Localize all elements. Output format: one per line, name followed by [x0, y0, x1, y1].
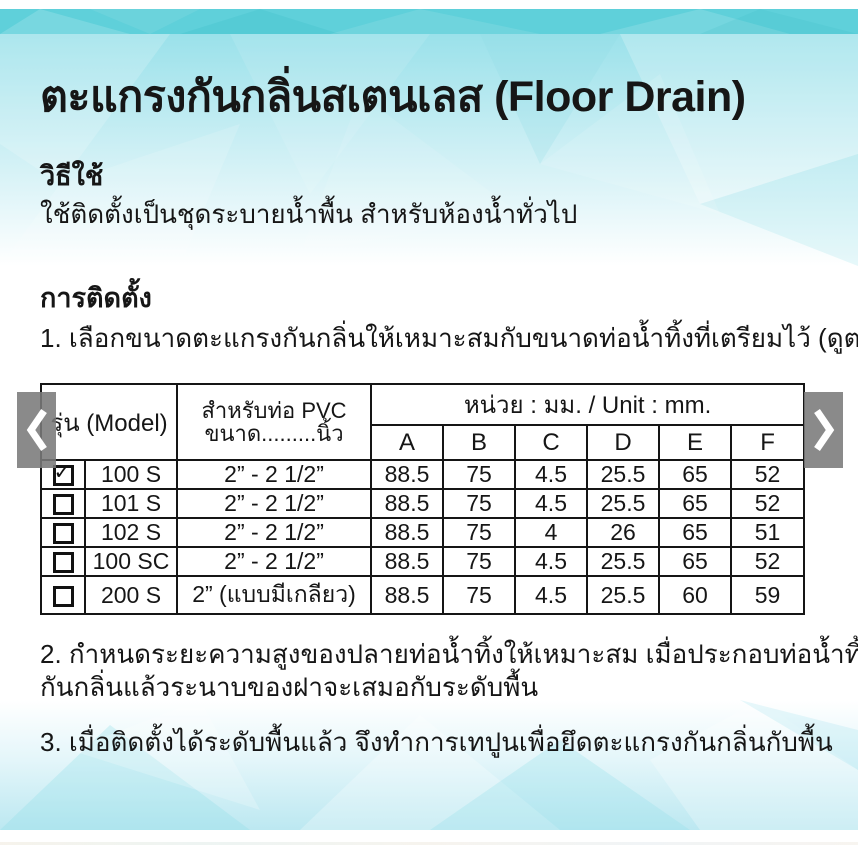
dim-cell: 25.5	[587, 460, 659, 489]
install-step-2-line1: 2. กำหนดระยะความสูงของปลายท่อน้ำทิ้งให้เ…	[40, 638, 858, 671]
pipe-header-line1: สำหรับท่อ PVC	[178, 399, 370, 422]
install-step-3: 3. เมื่อติดตั้งได้ระดับพื้นแล้ว จึงทำการ…	[40, 722, 833, 763]
usage-text: ใช้ติดตั้งเป็นชุดระบายน้ำพื้น สำหรับห้อง…	[40, 194, 577, 235]
model-checkbox[interactable]	[53, 523, 74, 544]
dim-cell: 75	[443, 518, 515, 547]
dim-cell: 25.5	[587, 547, 659, 576]
facet-pattern	[0, 9, 858, 34]
model-cell: 100 S	[85, 460, 177, 489]
table-row: 102 S 2” - 2 1/2” 88.5754266551	[41, 518, 804, 547]
dim-cell: 4	[515, 518, 587, 547]
model-checkbox[interactable]	[53, 586, 74, 607]
dim-cell: 75	[443, 547, 515, 576]
dim-column-header: B	[443, 425, 515, 460]
next-slide-edge	[0, 842, 858, 845]
dim-cell: 65	[659, 547, 731, 576]
pipe-header-line2: ขนาด.........นิ้ว	[178, 422, 370, 445]
dim-column-header: D	[587, 425, 659, 460]
dim-cell: 4.5	[515, 547, 587, 576]
dim-cell: 25.5	[587, 576, 659, 614]
dim-cell: 65	[659, 518, 731, 547]
unit-header: หน่วย : มม. / Unit : mm.	[371, 384, 804, 425]
model-cell: 200 S	[85, 576, 177, 614]
install-step-1: 1. เลือกขนาดตะแกรงกันกลิ่นให้เหมาะสมกับข…	[40, 318, 858, 359]
dim-cell: 75	[443, 489, 515, 518]
dim-cell: 52	[731, 547, 804, 576]
checkbox-cell[interactable]	[41, 518, 85, 547]
model-cell: 101 S	[85, 489, 177, 518]
pipe-cell: 2” - 2 1/2”	[177, 489, 371, 518]
carousel-next-button[interactable]	[804, 392, 843, 468]
chevron-right-icon	[812, 405, 836, 455]
dim-cell: 26	[587, 518, 659, 547]
chevron-left-icon	[25, 405, 49, 455]
dim-cell: 52	[731, 460, 804, 489]
dim-cell: 65	[659, 489, 731, 518]
install-step-2-line2: กันกลิ่นแล้วระนาบของฝาจะเสมอกับระดับพื้น	[40, 671, 858, 704]
pipe-column-header: สำหรับท่อ PVC ขนาด.........นิ้ว	[177, 384, 371, 460]
pipe-cell: 2” - 2 1/2”	[177, 518, 371, 547]
pipe-cell: 2” - 2 1/2”	[177, 460, 371, 489]
pipe-cell: 2” (แบบมีเกลียว)	[177, 576, 371, 614]
spec-table: รุ่น (Model) สำหรับท่อ PVC ขนาด.........…	[40, 383, 805, 615]
dim-cell: 65	[659, 460, 731, 489]
product-slide: ตะแกรงกันกลิ่นสเตนเลส (Floor Drain) วิธี…	[0, 0, 858, 858]
dim-cell: 88.5	[371, 576, 443, 614]
dim-cell: 4.5	[515, 576, 587, 614]
dim-column-header: C	[515, 425, 587, 460]
usage-heading: วิธีใช้	[40, 154, 103, 197]
dim-cell: 88.5	[371, 460, 443, 489]
model-column-header: รุ่น (Model)	[41, 384, 177, 460]
top-pattern-band	[0, 9, 858, 34]
facet-pattern	[0, 700, 858, 830]
dim-cell: 25.5	[587, 489, 659, 518]
model-cell: 100 SC	[85, 547, 177, 576]
bottom-pattern-band	[0, 700, 858, 830]
checkbox-cell[interactable]	[41, 547, 85, 576]
table-row: 200 S 2” (แบบมีเกลียว) 88.5754.525.56059	[41, 576, 804, 614]
model-cell: 102 S	[85, 518, 177, 547]
install-heading: การติดตั้ง	[40, 276, 152, 319]
table-row: ✓ 100 S 2” - 2 1/2” 88.5754.525.56552	[41, 460, 804, 489]
dim-column-header: A	[371, 425, 443, 460]
dim-column-header: E	[659, 425, 731, 460]
checkbox-cell[interactable]	[41, 489, 85, 518]
dim-cell: 4.5	[515, 489, 587, 518]
spec-table-body: ✓ 100 S 2” - 2 1/2” 88.5754.525.56552 10…	[41, 460, 804, 614]
dim-cell: 52	[731, 489, 804, 518]
install-step-2: 2. กำหนดระยะความสูงของปลายท่อน้ำทิ้งให้เ…	[40, 638, 858, 704]
dim-cell: 88.5	[371, 489, 443, 518]
dim-cell: 51	[731, 518, 804, 547]
dim-cell: 60	[659, 576, 731, 614]
page-title: ตะแกรงกันกลิ่นสเตนเลส (Floor Drain)	[40, 62, 746, 130]
checkbox-cell[interactable]	[41, 576, 85, 614]
model-checkbox[interactable]: ✓	[53, 465, 74, 486]
dim-cell: 4.5	[515, 460, 587, 489]
dim-column-header: F	[731, 425, 804, 460]
dim-cell: 75	[443, 576, 515, 614]
table-row: 100 SC 2” - 2 1/2” 88.5754.525.56552	[41, 547, 804, 576]
dim-cell: 88.5	[371, 518, 443, 547]
check-mark-icon: ✓	[54, 460, 72, 484]
dim-cell: 59	[731, 576, 804, 614]
pipe-cell: 2” - 2 1/2”	[177, 547, 371, 576]
carousel-prev-button[interactable]	[17, 392, 56, 468]
dim-cell: 75	[443, 460, 515, 489]
model-checkbox[interactable]	[53, 494, 74, 515]
dim-cell: 88.5	[371, 547, 443, 576]
model-checkbox[interactable]	[53, 552, 74, 573]
table-row: 101 S 2” - 2 1/2” 88.5754.525.56552	[41, 489, 804, 518]
